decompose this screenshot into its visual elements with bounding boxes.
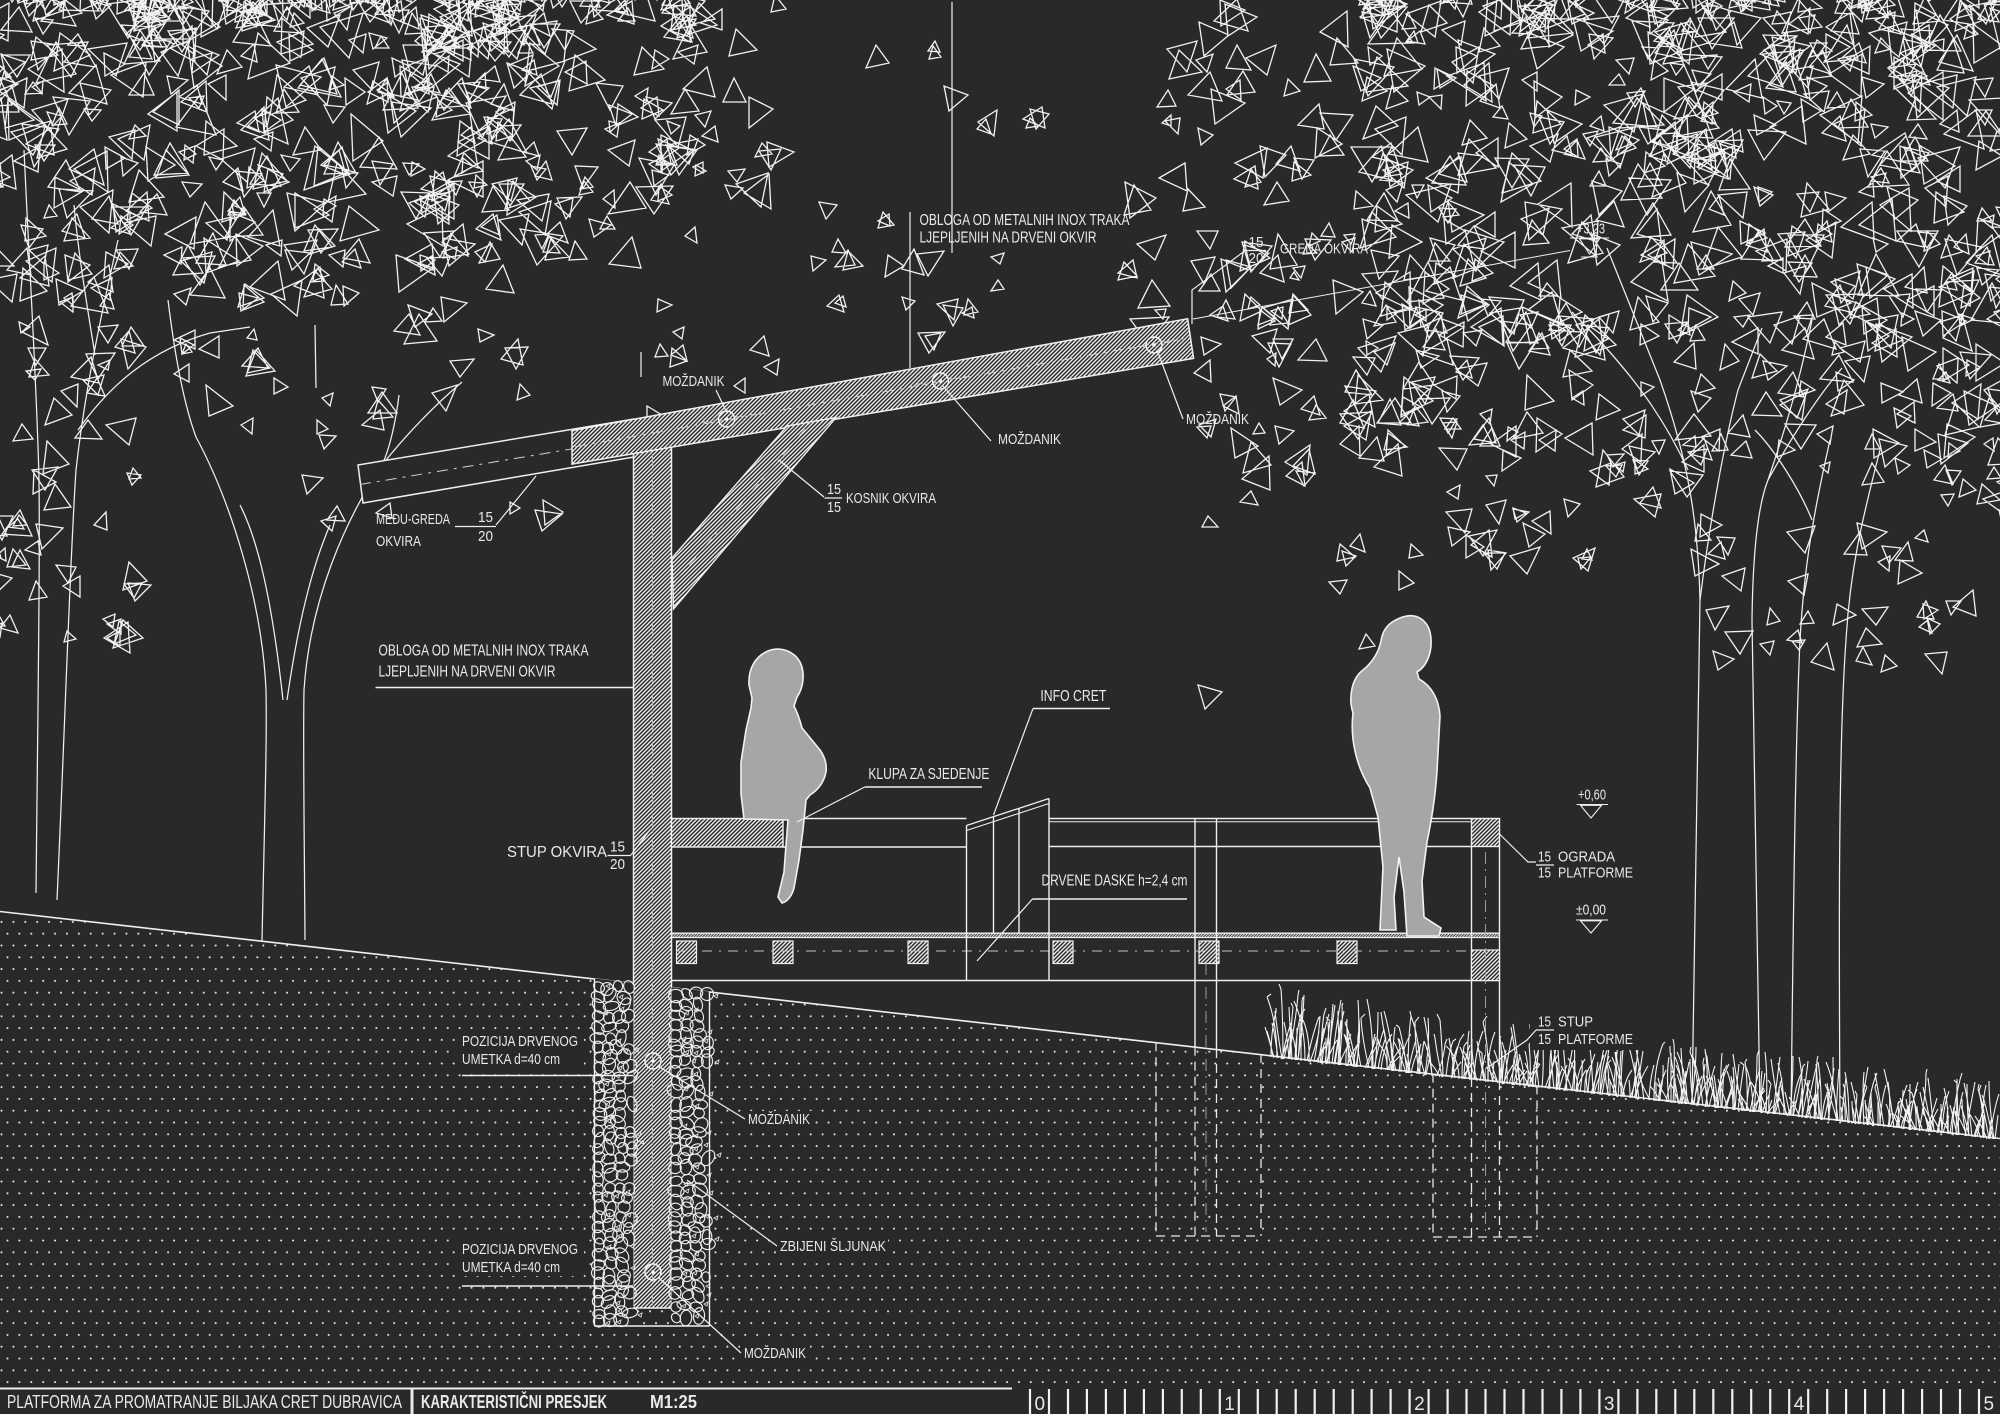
svg-text:15: 15 — [478, 509, 493, 526]
svg-text:KARAKTERISTIČNI PRESJEK: KARAKTERISTIČNI PRESJEK — [421, 1391, 607, 1412]
svg-text:MOŽDANIK: MOŽDANIK — [1186, 411, 1249, 428]
svg-text:M1:25: M1:25 — [650, 1392, 697, 1412]
svg-text:20: 20 — [478, 528, 493, 545]
svg-text:15: 15 — [610, 839, 625, 856]
svg-text:POZICIJA DRVENOG: POZICIJA DRVENOG — [462, 1033, 578, 1050]
svg-text:KLUPA ZA SJEDENJE: KLUPA ZA SJEDENJE — [868, 766, 989, 783]
svg-text:0: 0 — [1035, 1394, 1046, 1414]
svg-text:OGRADA: OGRADA — [1558, 849, 1615, 866]
svg-text:UMETKA d=40 cm: UMETKA d=40 cm — [462, 1259, 560, 1276]
svg-text:15: 15 — [1538, 1031, 1551, 1048]
svg-text:15: 15 — [827, 499, 841, 516]
svg-text:POZICIJA DRVENOG: POZICIJA DRVENOG — [462, 1241, 578, 1258]
svg-text:5: 5 — [1984, 1394, 1995, 1414]
svg-text:MOŽDANIK: MOŽDANIK — [998, 431, 1061, 448]
svg-text:20: 20 — [610, 856, 625, 873]
svg-text:15: 15 — [1538, 865, 1551, 882]
svg-text:MOŽDANIK: MOŽDANIK — [663, 373, 725, 390]
svg-text:PLATFORME: PLATFORME — [1558, 865, 1633, 882]
svg-text:GREDA OKVIRA: GREDA OKVIRA — [1280, 241, 1368, 258]
svg-text:20: 20 — [1249, 250, 1264, 267]
svg-text:MEĐU-GREDA: MEĐU-GREDA — [376, 511, 450, 528]
svg-text:MOŽDANIK: MOŽDANIK — [748, 1111, 810, 1128]
svg-text:INFO CRET: INFO CRET — [1040, 688, 1106, 705]
svg-text:15: 15 — [1538, 1014, 1551, 1031]
svg-text:1: 1 — [1224, 1394, 1235, 1414]
svg-text:OKVIRA: OKVIRA — [376, 533, 421, 550]
svg-text:15: 15 — [827, 481, 841, 498]
svg-text:OBLOGA OD METALNIH INOX TRAKA: OBLOGA OD METALNIH INOX TRAKA — [920, 212, 1130, 229]
svg-text:PLATFORME: PLATFORME — [1558, 1031, 1633, 1048]
svg-text:DRVENE DASKE h=2,4 cm: DRVENE DASKE h=2,4 cm — [1042, 873, 1188, 890]
svg-text:STUP: STUP — [1558, 1014, 1593, 1031]
svg-text:±0,00: ±0,00 — [1576, 902, 1606, 919]
svg-text:3: 3 — [1604, 1394, 1615, 1414]
svg-text:MOŽDANIK: MOŽDANIK — [744, 1345, 806, 1362]
svg-text:UMETKA d=40 cm: UMETKA d=40 cm — [462, 1051, 560, 1068]
svg-text:STUP OKVIRA: STUP OKVIRA — [507, 844, 607, 861]
svg-text:ZBIJENI ŠLJUNAK: ZBIJENI ŠLJUNAK — [780, 1238, 886, 1255]
svg-text:2: 2 — [1414, 1394, 1425, 1414]
svg-text:LJEPLJENIH NA DRVENI OKVIR: LJEPLJENIH NA DRVENI OKVIR — [379, 664, 556, 681]
svg-text:KOSNIK OKVIRA: KOSNIK OKVIRA — [846, 490, 936, 507]
svg-text:LJEPLJENIH NA DRVENI OKVIR: LJEPLJENIH NA DRVENI OKVIR — [920, 230, 1097, 247]
svg-text:+3,23: +3,23 — [1577, 221, 1605, 238]
svg-text:15: 15 — [1538, 849, 1551, 866]
svg-text:PLATFORMA ZA PROMATRANJE BILJA: PLATFORMA ZA PROMATRANJE BILJAKA CRET DU… — [7, 1392, 402, 1412]
svg-text:+0,60: +0,60 — [1578, 787, 1606, 804]
svg-text:4: 4 — [1794, 1394, 1805, 1414]
svg-text:15: 15 — [1249, 234, 1264, 251]
svg-text:OBLOGA OD METALNIH INOX TRAKA: OBLOGA OD METALNIH INOX TRAKA — [379, 643, 589, 660]
